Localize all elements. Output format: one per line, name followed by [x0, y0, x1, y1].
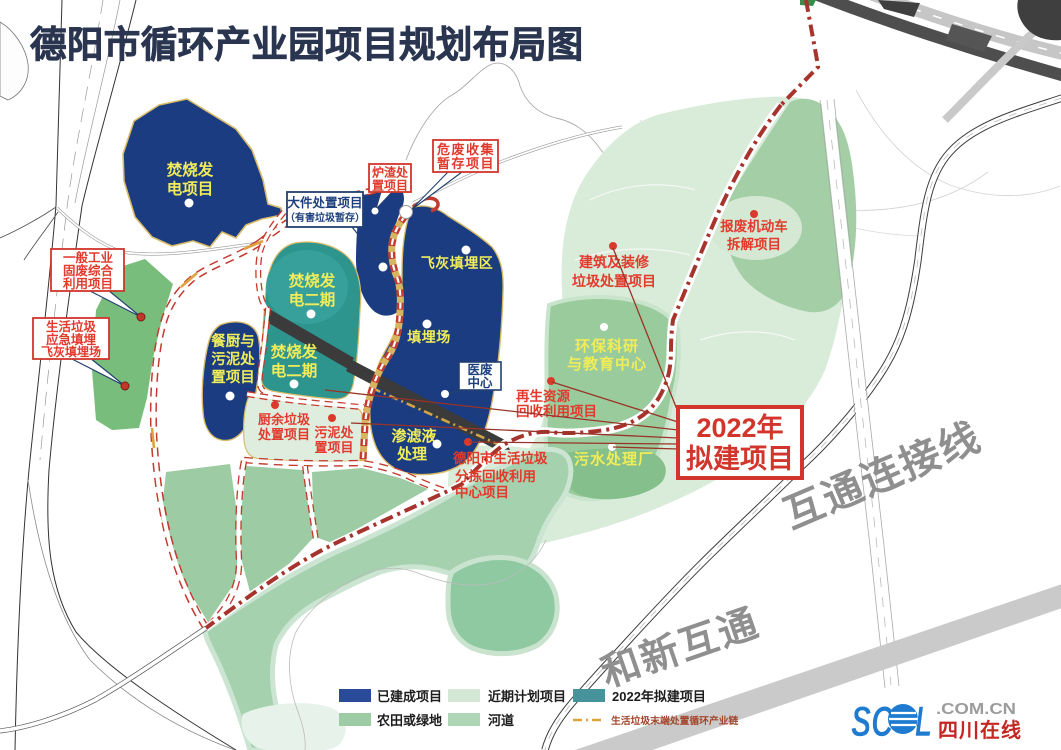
svg-text:一般工业: 一般工业: [63, 250, 114, 265]
svg-text:厨余垃圾: 厨余垃圾: [258, 412, 311, 427]
svg-text:置项目: 置项目: [372, 179, 408, 193]
svg-text:垃圾处置项目: 垃圾处置项目: [572, 273, 656, 289]
svg-text:电项目: 电项目: [167, 179, 214, 198]
svg-text:已建成项目: 已建成项目: [377, 689, 442, 704]
svg-text:L: L: [915, 698, 932, 746]
svg-text:飞灰填埋区: 飞灰填埋区: [421, 255, 494, 271]
svg-text:四川在线: 四川在线: [938, 718, 1022, 742]
svg-text:电二期: 电二期: [271, 361, 318, 380]
svg-text:餐厨与: 餐厨与: [211, 332, 255, 350]
svg-text:河道: 河道: [488, 713, 514, 728]
svg-text:近期计划项目: 近期计划项目: [488, 689, 566, 704]
svg-text:中心项目: 中心项目: [455, 484, 509, 500]
svg-text:电二期: 电二期: [289, 290, 336, 309]
svg-text:分拣回收利用: 分拣回收利用: [455, 468, 536, 484]
svg-text:大件处置项目: 大件处置项目: [287, 195, 362, 210]
svg-text:医废: 医废: [467, 362, 493, 377]
svg-text:焚烧发: 焚烧发: [271, 342, 318, 361]
svg-text:生活垃圾末端处置循环产业链: 生活垃圾末端处置循环产业链: [611, 714, 739, 727]
svg-text:德阳市生活垃圾: 德阳市生活垃圾: [453, 450, 548, 466]
svg-text:中心: 中心: [467, 375, 493, 390]
svg-text:污泥处: 污泥处: [211, 350, 255, 368]
svg-text:拆解项目: 拆解项目: [727, 236, 781, 252]
svg-text:利用项目: 利用项目: [63, 276, 113, 291]
svg-text:固废综合: 固废综合: [63, 263, 114, 278]
svg-text:SC: SC: [851, 698, 894, 746]
svg-text:危废收集: 危废收集: [437, 142, 495, 157]
svg-text:拟建项目: 拟建项目: [686, 444, 794, 474]
svg-text:报废机动车: 报废机动车: [720, 218, 788, 234]
svg-text:处理: 处理: [396, 445, 427, 463]
svg-text:炉渣处: 炉渣处: [372, 165, 409, 180]
svg-text:焚烧发: 焚烧发: [289, 271, 336, 290]
svg-text:与教育中心: 与教育中心: [567, 355, 647, 373]
svg-text:2022年拟建项目: 2022年拟建项目: [612, 689, 706, 704]
svg-text:渗滤液: 渗滤液: [391, 427, 437, 445]
svg-text:处置项目: 处置项目: [257, 427, 310, 442]
svg-text:污泥处: 污泥处: [314, 425, 354, 440]
svg-text:.COM.CN: .COM.CN: [936, 701, 1016, 718]
svg-text:焚烧发: 焚烧发: [167, 160, 214, 179]
svg-text:建筑及装修: 建筑及装修: [579, 254, 650, 270]
svg-text:生活垃圾: 生活垃圾: [46, 319, 97, 334]
svg-text:（有害垃圾暂存）: （有害垃圾暂存）: [285, 211, 365, 224]
svg-text:暂存项目: 暂存项目: [437, 156, 495, 171]
svg-text:2022年: 2022年: [696, 412, 783, 443]
svg-text:飞灰填埋场: 飞灰填埋场: [41, 344, 101, 359]
svg-text:置项目: 置项目: [211, 369, 255, 386]
svg-text:置项目: 置项目: [314, 440, 353, 455]
svg-text:再生资源: 再生资源: [516, 388, 570, 404]
svg-text:污水处理厂: 污水处理厂: [574, 450, 654, 468]
svg-text:环保科研: 环保科研: [575, 337, 639, 355]
svg-text:德阳市循环产业园项目规划布局图: 德阳市循环产业园项目规划布局图: [30, 24, 584, 65]
svg-text:农田或绿地: 农田或绿地: [376, 713, 442, 728]
svg-text:填埋场: 填埋场: [407, 329, 451, 345]
